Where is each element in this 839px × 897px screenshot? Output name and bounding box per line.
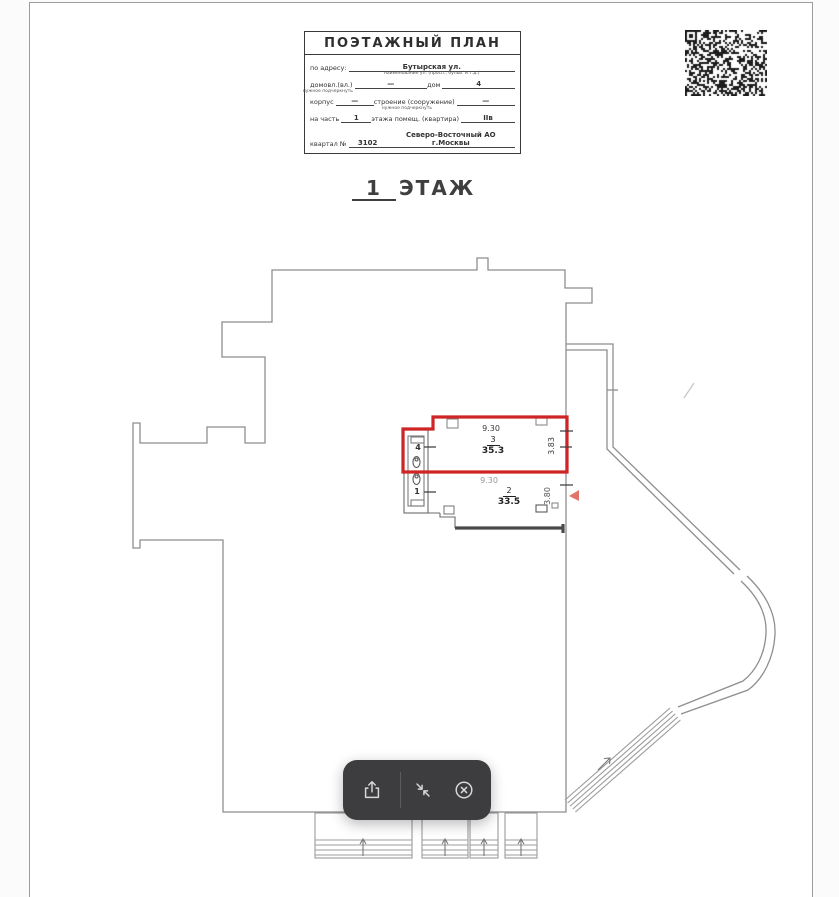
district-value: Северо-Восточный АО г.Москвы — [406, 131, 496, 147]
building-value: — — [351, 97, 358, 105]
ownership-label: домовл.(вл.) — [310, 81, 353, 89]
address-row: по адресу: Бутырская ул. наименование ул… — [310, 63, 515, 72]
structure-label-wrap: строение (сооружение) нужное подчеркнуть — [374, 98, 457, 106]
block-row: квартал № 3102 Северо-Восточный АО г.Мос… — [310, 131, 515, 148]
building-row: корпус — строение (сооружение) нужное по… — [310, 97, 515, 106]
qr-code — [685, 30, 767, 96]
room2-number: 2 — [502, 487, 515, 497]
structure-label: строение (сооружение) — [374, 98, 455, 106]
collapse-icon — [412, 779, 434, 801]
ownership-row: домовл.(вл.) нужное подчеркнуть — дом 4 — [310, 80, 515, 89]
room2-width-dim: 9.30 — [480, 477, 498, 485]
floor-number: 1 — [352, 178, 396, 201]
house-value-line: 4 — [442, 80, 515, 89]
floor-heading: 1ЭТАЖ — [352, 176, 475, 201]
red-pointer-marker — [569, 490, 579, 501]
block-label: квартал № — [310, 140, 349, 148]
side-stairs — [565, 708, 680, 812]
part-row: на часть 1 этажа помещ. (квартира) IIв — [310, 114, 515, 123]
address-caption: наименование ул. (просп., бульв. и т.д.) — [384, 71, 480, 77]
ownership-value-line: — — [355, 80, 428, 89]
share-button[interactable] — [343, 760, 400, 820]
share-icon — [361, 779, 383, 801]
apartment-value-line: IIв — [461, 114, 515, 123]
part-value: 1 — [354, 114, 359, 122]
room1-number: 1 — [414, 488, 420, 496]
part-label: на часть — [310, 115, 341, 123]
room3-area: 35.3 — [482, 447, 504, 456]
block-value-line: 3102 — [349, 139, 387, 148]
floor-suffix-label: этажа помещ. (квартира) — [371, 115, 461, 123]
floor-word: ЭТАЖ — [399, 176, 475, 200]
room3-width-dim: 9.30 — [482, 425, 500, 433]
ownership-label-wrap: домовл.(вл.) нужное подчеркнуть — [310, 81, 355, 89]
floorplan-viewer: 9.30 3 35.3 3.83 9.30 2 33.5 3.80 4 1 ПО… — [0, 0, 839, 897]
ownership-caption: нужное подчеркнуть — [303, 89, 353, 95]
house-label: дом — [427, 81, 442, 89]
close-button[interactable] — [445, 760, 483, 820]
part-value-line: 1 — [341, 114, 371, 123]
room2-label: 2 33.5 — [498, 487, 520, 507]
address-label: по адресу: — [310, 64, 349, 72]
house-value: 4 — [476, 80, 481, 88]
title-block-heading: ПОЭТАЖНЫЙ ПЛАН — [305, 32, 520, 55]
room3-label: 3 35.3 — [482, 436, 504, 456]
collapse-button[interactable] — [401, 760, 445, 820]
address-value-line: Бутырская ул. наименование ул. (просп., … — [349, 63, 515, 72]
room4-number: 4 — [415, 444, 421, 452]
structure-caption: нужное подчеркнуть — [382, 106, 432, 112]
building-value-line: — — [336, 97, 374, 106]
room3-depth-dim: 3.83 — [548, 437, 556, 455]
viewer-toolbar — [343, 760, 491, 820]
apartment-value: IIв — [483, 114, 493, 122]
room2-area: 33.5 — [498, 498, 520, 507]
address-value: Бутырская ул. — [403, 63, 461, 71]
close-circle-icon — [453, 779, 475, 801]
title-block: ПОЭТАЖНЫЙ ПЛАН по адресу: Бутырская ул. … — [304, 31, 521, 154]
district-value-line: Северо-Восточный АО г.Москвы — [387, 131, 515, 148]
ownership-value: — — [387, 80, 394, 88]
structure-value: — — [482, 97, 489, 105]
room3-number: 3 — [486, 436, 499, 446]
block-value: 3102 — [358, 139, 377, 147]
structure-value-line: — — [457, 97, 515, 106]
building-label: корпус — [310, 98, 336, 106]
building-outline — [133, 258, 775, 812]
room2-depth-dim: 3.80 — [544, 487, 552, 505]
